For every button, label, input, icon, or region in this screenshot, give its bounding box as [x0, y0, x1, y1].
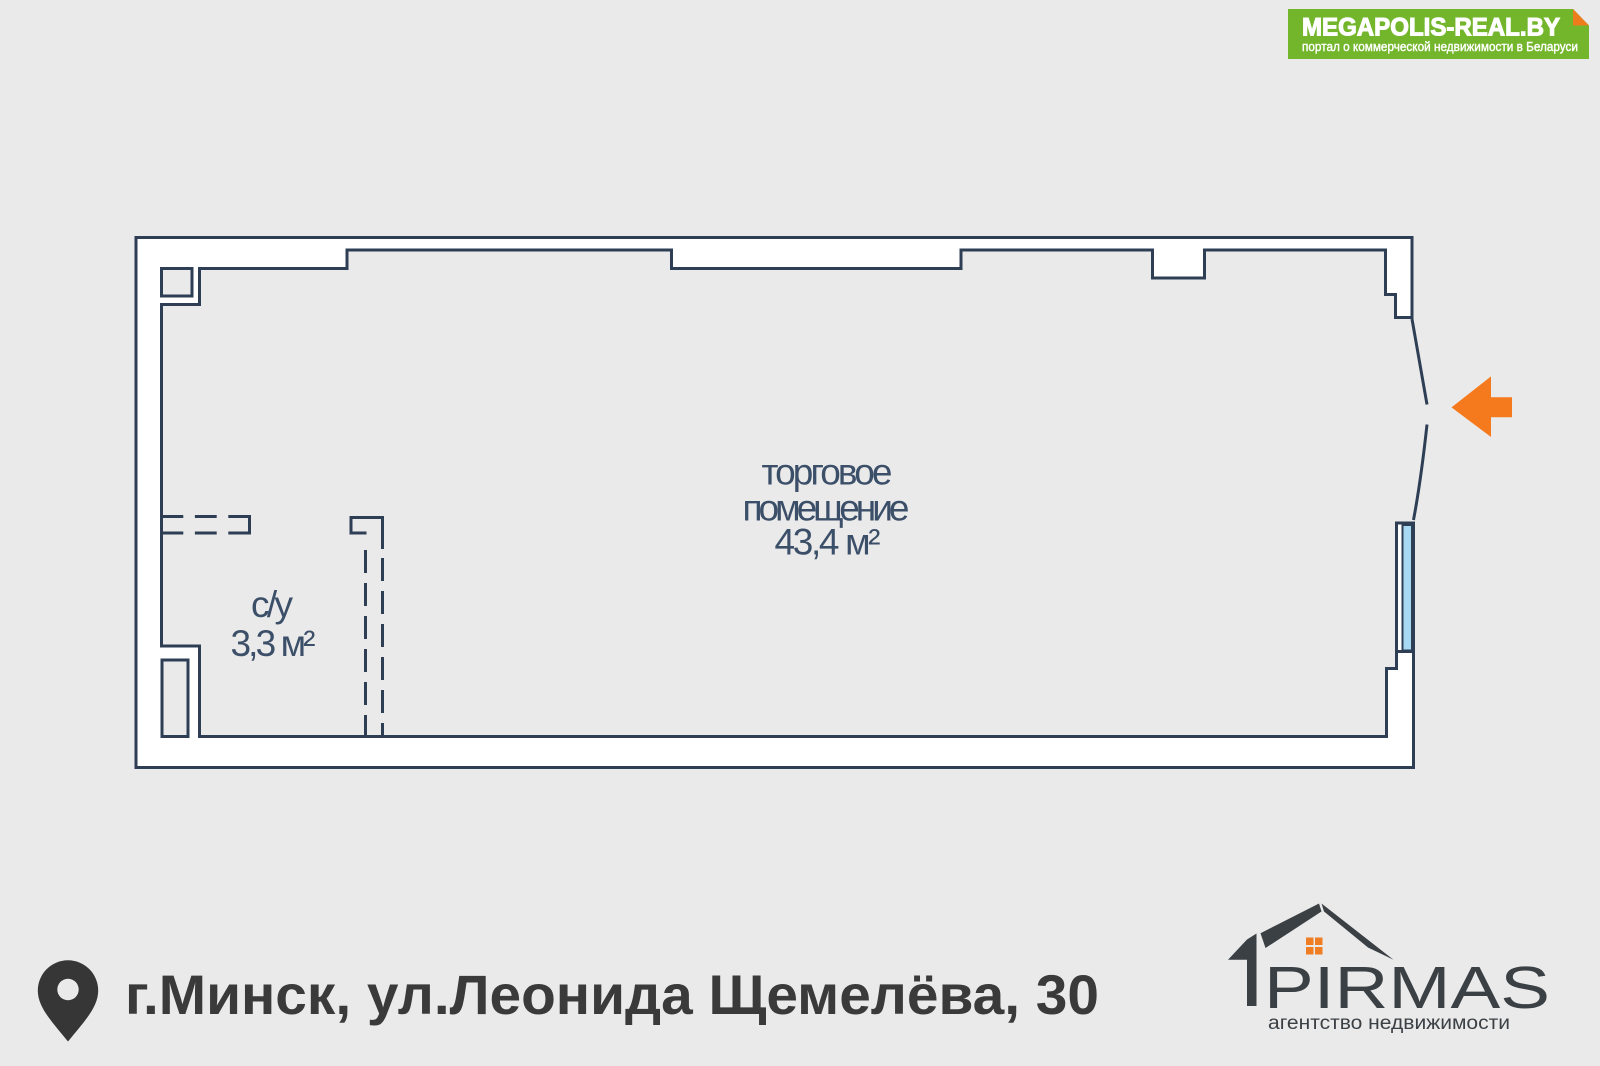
svg-text:портал о коммерческой недвижим: портал о коммерческой недвижимости в Бел…: [1302, 39, 1578, 54]
svg-text:MEGAPOLIS-REAL.BY: MEGAPOLIS-REAL.BY: [1302, 14, 1560, 42]
svg-text:с/у: с/у: [251, 584, 294, 625]
svg-text:3,3 м²: 3,3 м²: [231, 623, 316, 664]
svg-text:43,4 м²: 43,4 м²: [775, 522, 881, 563]
svg-text:торговое: торговое: [762, 452, 893, 493]
svg-text:г.Минск, ул.Леонида Щемелёва,: г.Минск, ул.Леонида Щемелёва, 30: [125, 963, 1099, 1026]
svg-text:PIRMAS: PIRMAS: [1264, 955, 1550, 1021]
svg-text:агентство недвижимости: агентство недвижимости: [1268, 1013, 1510, 1034]
